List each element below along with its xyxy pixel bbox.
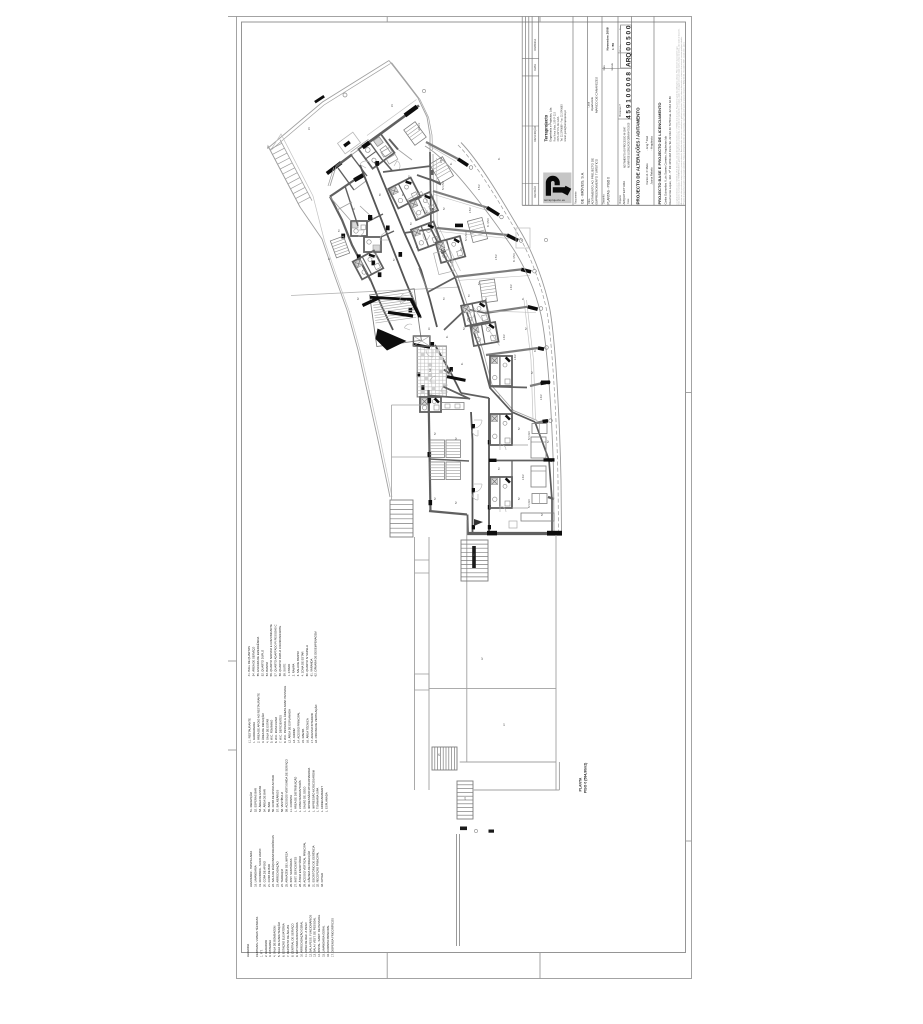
svg-text:61: 61 — [499, 157, 501, 160]
svg-text:7. W.C. DEFICIENTES: 7. W.C. DEFICIENTES — [279, 715, 283, 743]
svg-text:11. ZONA DE REC. A PESO: 11. ZONA DE REC. A PESO — [304, 923, 308, 958]
svg-text:31. ESCRITÓRIO DE GERÊNCIA: 31. ESCRITÓRIO DE GERÊNCIA — [310, 845, 315, 887]
svg-text:2. GERADOR: 2. GERADOR — [264, 940, 268, 957]
svg-text:52: 52 — [548, 440, 550, 443]
svg-text:19. ROUPARIA - SUJO/ LIMPO: 19. ROUPARIA - SUJO/ LIMPO — [258, 849, 262, 887]
svg-text:17. DISPENSA FRIGORÍFICOS: 17. DISPENSA FRIGORÍFICOS — [331, 918, 335, 957]
svg-text:L1. RESTAURANTE: L1. RESTAURANTE — [248, 718, 252, 743]
svg-text:32. RECEPÇÃO PRINCIPAL: 32. RECEPÇÃO PRINCIPAL — [315, 851, 320, 887]
svg-text:L2. ÁREA DE ESPLANADA: L2. ÁREA DE ESPLANADA — [288, 709, 292, 743]
svg-text:52: 52 — [456, 501, 458, 504]
svg-text:L. ARRECADAMENT: L. ARRECADAMENT — [320, 786, 324, 812]
svg-text:9.4m²: 9.4m² — [522, 474, 525, 480]
svg-text:4. SALA DE ESTAR: 4. SALA DE ESTAR — [265, 719, 269, 743]
svg-text:3. ÁREA DE REFEIÇÃO: 3. ÁREA DE REFEIÇÃO — [260, 713, 265, 743]
svg-text:1. CHAPA: 1. CHAPA — [287, 664, 291, 676]
svg-text:61: 61 — [523, 297, 525, 300]
svg-text:5. W.C. FEMININO: 5. W.C. FEMININO — [270, 720, 274, 743]
svg-text:30. CÂMARA DE DIRECÇÃO: 30. CÂMARA DE DIRECÇÃO — [306, 851, 311, 887]
svg-text:RUBRICA: RUBRICA — [533, 39, 537, 51]
svg-text:58. QUARTO DUPLO C/COMUNICANTE: 58. QUARTO DUPLO C/COMUNICANTE — [278, 626, 282, 677]
svg-text:Fase: Fase — [627, 198, 630, 204]
svg-text:Carlos A. P. Melo: Carlos A. P. Melo — [645, 163, 649, 185]
svg-text:Desenho: Desenho — [603, 194, 606, 204]
svg-text:20. COPA DE APOIO: 20. COPA DE APOIO — [262, 861, 266, 887]
svg-text:62. CÂMARA DE DESEMPENAGEM: 62. CÂMARA DE DESEMPENAGEM — [314, 631, 318, 677]
svg-text:DESCRIÇÃO: DESCRIÇÃO — [532, 126, 537, 141]
svg-text:53: 53 — [409, 175, 411, 178]
svg-text:L7. ACESSO INTERIOR: L7. ACESSO INTERIOR — [310, 713, 314, 743]
svg-text:Escala: Escala — [611, 63, 614, 71]
svg-text:28. ÁTRIO ESCRITÓRIO: 28. ÁTRIO ESCRITÓRIO — [297, 856, 302, 887]
svg-text:16. COZINHA PRINCIPAL: 16. COZINHA PRINCIPAL — [326, 925, 330, 957]
svg-text:terraprojecto.eu: terraprojecto.eu — [544, 198, 566, 202]
svg-text:13. SALA / VEST. DE PESSOAL: 13. SALA / VEST. DE PESSOAL — [313, 917, 317, 957]
svg-text:52: 52 — [519, 427, 521, 430]
svg-text:62: 62 — [358, 297, 360, 300]
svg-text:L. IMPRESSÃO/FOTOCOPIADORA: L. IMPRESSÃO/FOTOCOPIADORA — [306, 768, 311, 812]
svg-text:L. ESPLANADA: L. ESPLANADA — [325, 792, 329, 812]
svg-text:L3: L3 — [504, 723, 506, 726]
svg-text:1 :50: 1 :50 — [611, 43, 615, 50]
svg-text:PLANTAS - PISO 0: PLANTAS - PISO 0 — [607, 177, 611, 205]
svg-text:9,5m²: 9,5m² — [440, 157, 443, 163]
svg-text:PISO 0 (584,90m2): PISO 0 (584,90m2) — [584, 763, 588, 793]
svg-text:LEGENDA: LEGENDA — [246, 944, 250, 957]
svg-text:L8. OFICINA DE VENTILAÇÃO: L8. OFICINA DE VENTILAÇÃO — [313, 705, 318, 743]
svg-text:2. ÁREA DE APOIO AO RESTAURANT: 2. ÁREA DE APOIO AO RESTAURANTE — [256, 693, 260, 743]
svg-text:41: 41 — [451, 162, 453, 165]
svg-text:4 5 9 1 0 0 0 0 8: 4 5 9 1 0 0 0 0 8 — [626, 72, 633, 119]
svg-text:15. LAVANDARIA GERAL: 15. LAVANDARIA GERAL — [322, 925, 326, 957]
svg-text:31: 31 — [354, 207, 356, 210]
svg-text:PROJECTO BASE E PROJECTO DE LI: PROJECTO BASE E PROJECTO DE LICENCIAMENT… — [657, 102, 662, 204]
svg-text:26. INST. SANITÁRIAS: 26. INST. SANITÁRIAS — [289, 858, 293, 887]
svg-text:57. BALNEÁRIOS: 57. BALNEÁRIOS — [276, 790, 280, 812]
svg-text:52: 52 — [444, 207, 446, 210]
svg-text:9.5m²: 9.5m² — [495, 254, 498, 260]
svg-text:52: 52 — [456, 437, 458, 440]
svg-text:52 9,5m²: 52 9,5m² — [442, 181, 445, 190]
svg-text:52 9,4m²: 52 9,4m² — [528, 431, 531, 440]
svg-text:Terraprojecto: Terraprojecto — [544, 114, 549, 141]
svg-text:61 4,5m²: 61 4,5m² — [513, 253, 516, 262]
svg-text:53. BANHO: 53. BANHO — [265, 662, 269, 676]
svg-text:- Arquitecta: - Arquitecta — [650, 136, 654, 151]
svg-text:L6. ÁREA TÉCNICA: L6. ÁREA TÉCNICA — [304, 718, 309, 743]
svg-text:58. VESTÍBULO: 58. VESTÍBULO — [280, 792, 284, 812]
svg-text:25. ARMAZÉM DE LIMPEZA: 25. ARMAZÉM DE LIMPEZA — [284, 852, 289, 887]
svg-text:2. RAMPA: 2. RAMPA — [292, 664, 296, 677]
svg-text:L. SALÃO DE JOGO: L. SALÃO DE JOGO — [301, 787, 306, 812]
svg-text:L. ÁREA DE DISTRIBUIÇÃO: L. ÁREA DE DISTRIBUIÇÃO — [293, 777, 298, 812]
svg-text:24.1m²: 24.1m² — [418, 123, 421, 130]
svg-text:54. ÁREA DE SERVIÇO: 54. ÁREA DE SERVIÇO — [251, 647, 255, 677]
svg-text:9.4m²: 9.4m² — [540, 394, 543, 400]
svg-text:4. SALA DE BOMBAGEM: 4. SALA DE BOMBAGEM — [273, 925, 277, 957]
svg-text:52 9,4m²: 52 9,4m² — [528, 499, 531, 508]
svg-text:53: 53 — [469, 294, 471, 297]
svg-text:52 9,5m²: 52 9,5m² — [465, 232, 468, 241]
svg-text:24. TERRAÇO: 24. TERRAÇO — [280, 869, 284, 887]
svg-text:PLANTA: PLANTA — [579, 777, 583, 791]
svg-text:29. ACESSO VERTICAL PRINCIPAL: 29. ACESSO VERTICAL PRINCIPAL — [302, 841, 306, 887]
svg-text:23. ARRECADAÇÃO: 23. ARRECADAÇÃO — [275, 861, 280, 887]
svg-text:53: 53 — [411, 222, 413, 225]
svg-text:L1. COZINHA: L1. COZINHA — [289, 795, 293, 812]
svg-text:Data: Data — [603, 65, 606, 71]
svg-text:L2: L2 — [482, 657, 484, 660]
svg-text:- Eng.º Civil: - Eng.º Civil — [645, 136, 649, 151]
svg-text:54. ÁREA DE BAR: 54. ÁREA DE BAR — [262, 789, 266, 812]
svg-text:9.5m²: 9.5m² — [469, 207, 472, 213]
svg-text:Apartotéis: Apartotéis — [590, 97, 594, 111]
svg-text:33. FOYER: 33. FOYER — [320, 873, 324, 887]
svg-text:60. QUARTO S/ SAPELA: 60. QUARTO S/ SAPELA — [305, 645, 309, 676]
svg-text:56. QUARTO S/APOIO E COMUNICAN: 56. QUARTO S/APOIO E COMUNICANTE — [269, 624, 273, 676]
svg-text:52. ESPERAS BAR: 52. ESPERAS BAR — [253, 788, 257, 812]
svg-text:Lei aplicável: Decreto-Lei nº: Lei aplicável: Decreto-Lei nº 555/99 de … — [675, 45, 678, 204]
svg-text:hall: hall — [430, 368, 432, 372]
svg-text:8. CENTRAL DE SERVIÇO: 8. CENTRAL DE SERVIÇO — [291, 924, 295, 957]
svg-text:22. SALA DE MÁQUINAS/FRIGORÍFI: 22. SALA DE MÁQUINAS/FRIGORÍFICAS — [271, 835, 275, 887]
svg-text:10. ARRECADAÇÃO GERAL: 10. ARRECADAÇÃO GERAL — [298, 921, 303, 957]
svg-text:57. QUARTO ADAPTADO P/ PESSOAS: 57. QUARTO ADAPTADO P/ PESSOAS C — [274, 624, 278, 676]
svg-text:5. SALA DE MANUTENÇÃO: 5. SALA DE MANUTENÇÃO — [276, 922, 281, 957]
svg-text:3. SALA DE BANHO: 3. SALA DE BANHO — [296, 651, 300, 676]
svg-text:53. ÁREA DE ESTAR: 53. ÁREA DE ESTAR — [258, 786, 262, 812]
svg-text:3. CISTERNA: 3. CISTERNA — [268, 940, 272, 957]
svg-text:41: 41 — [462, 362, 464, 365]
svg-text:Email: geral@terraprojecto.pt: Email: geral@terraprojecto.pt — [564, 110, 567, 141]
svg-text:9.4m²: 9.4m² — [503, 334, 506, 340]
svg-text:52: 52 — [519, 497, 521, 500]
svg-text:REVISÃO: REVISÃO — [532, 186, 537, 198]
svg-text:52: 52 — [435, 497, 437, 500]
svg-text:18. LAVANDARIA: 18. LAVANDARIA — [253, 865, 257, 887]
svg-text:59. SUITE: 59. SUITE — [283, 663, 287, 676]
svg-text:55. BAR: 55. BAR — [267, 802, 271, 812]
svg-text:L5. RAMPA: L5. RAMPA — [301, 729, 305, 743]
svg-text:24: 24 — [392, 104, 394, 107]
svg-text:MARCO DE CANAVEZES: MARCO DE CANAVEZES — [595, 77, 599, 113]
svg-text:GE - IMÓVEIS, S.A.: GE - IMÓVEIS, S.A. — [580, 172, 585, 204]
svg-text:L. TISANARIA S/PA: L. TISANARIA S/PA — [316, 788, 320, 812]
svg-text:Carlos Guimarães / Luís Soares: Carlos Guimarães / Luís Soares Carneiro,… — [664, 136, 668, 205]
svg-text:Rua Fernão Lopes, 102 - 5º DF: Rua Fernão Lopes, 102 - 5º DF 4150-318 P… — [668, 96, 672, 205]
svg-text:12. SALA PESS. FUNCIONÁRIOS: 12. SALA PESS. FUNCIONÁRIOS — [308, 915, 312, 957]
svg-text:ALVARÁ DE LICENÇA DE OBRA Nº75: ALVARÁ DE LICENÇA DE OBRA Nº75/2008 — [627, 122, 631, 168]
svg-text:21. COPA DE BAR: 21. COPA DE BAR — [267, 864, 271, 887]
svg-text:PROJECTO DE ALTERAÇÕES / ADITA: PROJECTO DE ALTERAÇÕES / ADITAMENTO — [635, 107, 641, 205]
svg-text:L. ZONA VENDAS/TURÍS: L. ZONA VENDAS/TURÍS — [298, 780, 302, 812]
svg-text:52: 52 — [486, 297, 488, 300]
svg-text:53: 53 — [427, 210, 429, 213]
svg-text:14. INSTAL. SANIT. DE PESSOAL: 14. INSTAL. SANIT. DE PESSOAL — [317, 914, 321, 957]
svg-text:ALMOFARIZ - HOSPILLARIA: ALMOFARIZ - HOSPILLARIA — [249, 851, 253, 887]
svg-text:L. IMPRESSÃO MÚSICO/JARDIM: L. IMPRESSÃO MÚSICO/JARDIM — [310, 769, 315, 812]
svg-text:56: 56 — [380, 193, 382, 196]
svg-text:Novembro 2008: Novembro 2008 — [606, 27, 610, 50]
svg-text:27. INST. DEFICIENTES: 27. INST. DEFICIENTES — [294, 857, 298, 887]
svg-text:EMPREENDIMENTO TURÍSTICO: EMPREENDIMENTO TURÍSTICO — [595, 158, 599, 204]
svg-text:Rua Nova Maia, 199 7º 210: Rua Nova Maia, 199 7º 210 — [553, 112, 557, 142]
svg-text:L3. JARDIM: L3. JARDIM — [292, 727, 296, 743]
svg-text:Projecto de arquitectura sujei: Projecto de arquitectura sujeito a aprov… — [683, 41, 686, 204]
svg-text:8. W.C. PESSOAL E ÁREAS ADAP.: 8. W.C. PESSOAL E ÁREAS ADAP. PESSOAL — [283, 685, 287, 743]
svg-text:ADITAMENTO AO PROCESSO Nº 9547: ADITAMENTO AO PROCESSO Nº 9547 — [623, 126, 627, 168]
svg-text:Processo nº: Processo nº — [618, 104, 622, 117]
svg-text:DATA: DATA — [533, 64, 537, 71]
svg-text:ARQUITECTURA: ARQUITECTURA — [622, 181, 626, 205]
svg-text:51. RECEPÇÃO: 51. RECEPÇÃO — [248, 792, 253, 812]
svg-text:52. QUARTO DUPLO: 52. QUARTO DUPLO — [260, 650, 264, 677]
svg-text:1. GARRAFEIRA: 1. GARRAFEIRA — [252, 722, 256, 743]
svg-text:56. COPA DE APOIO AO BAR: 56. COPA DE APOIO AO BAR — [271, 775, 275, 812]
svg-text:59. ACESSOS VERT./SAÍDA DE SER: 59. ACESSOS VERT./SAÍDA DE SERVIÇO — [285, 759, 289, 812]
svg-text:61 4,5m²: 61 4,5m² — [487, 218, 490, 227]
svg-text:9. ROTUNDA RODOVIÁRIA: 9. ROTUNDA RODOVIÁRIA — [295, 922, 299, 957]
svg-text:CENTRAIS / ZONAS TÉCNICAS: CENTRAIS / ZONAS TÉCNICAS — [254, 917, 259, 957]
svg-text:55. ESCADA DE EMERGÊNCIA: 55. ESCADA DE EMERGÊNCIA — [255, 637, 260, 677]
svg-text:6. ESTAÇÃO ELEVATÓRIA: 6. ESTAÇÃO ELEVATÓRIA — [281, 923, 286, 957]
svg-text:24: 24 — [309, 127, 311, 130]
svg-text:Joana Rebelo: Joana Rebelo — [650, 167, 654, 185]
svg-text:41: 41 — [447, 335, 449, 338]
svg-text:Engenharia e Projectos, Lda: Engenharia e Projectos, Lda — [549, 107, 553, 141]
svg-text:53: 53 — [499, 467, 501, 470]
svg-text:53: 53 — [444, 297, 446, 300]
svg-text:61. VARANDA: 61. VARANDA — [309, 658, 313, 676]
svg-text:4. ZONA DE ESTAR: 4. ZONA DE ESTAR — [300, 651, 304, 676]
svg-text:4.5m²: 4.5m² — [478, 184, 481, 190]
svg-text:29: 29 — [429, 327, 431, 330]
svg-text:9.4m²: 9.4m² — [514, 354, 517, 360]
svg-text:41. HALL DE QUARTOS: 41. HALL DE QUARTOS — [247, 646, 251, 676]
svg-text:6. W.C. MASCULINO: 6. W.C. MASCULINO — [274, 717, 278, 743]
svg-text:53: 53 — [339, 229, 341, 232]
svg-text:L4. ACESSO PRINCIPAL: L4. ACESSO PRINCIPAL — [296, 712, 300, 743]
svg-text:Requerente: Requerente — [575, 191, 578, 204]
svg-text:52: 52 — [435, 432, 437, 435]
svg-text:1. P.T.: 1. P.T. — [259, 949, 263, 957]
svg-text:L4: L4 — [465, 797, 467, 800]
svg-text:9.6m²: 9.6m² — [510, 284, 513, 290]
